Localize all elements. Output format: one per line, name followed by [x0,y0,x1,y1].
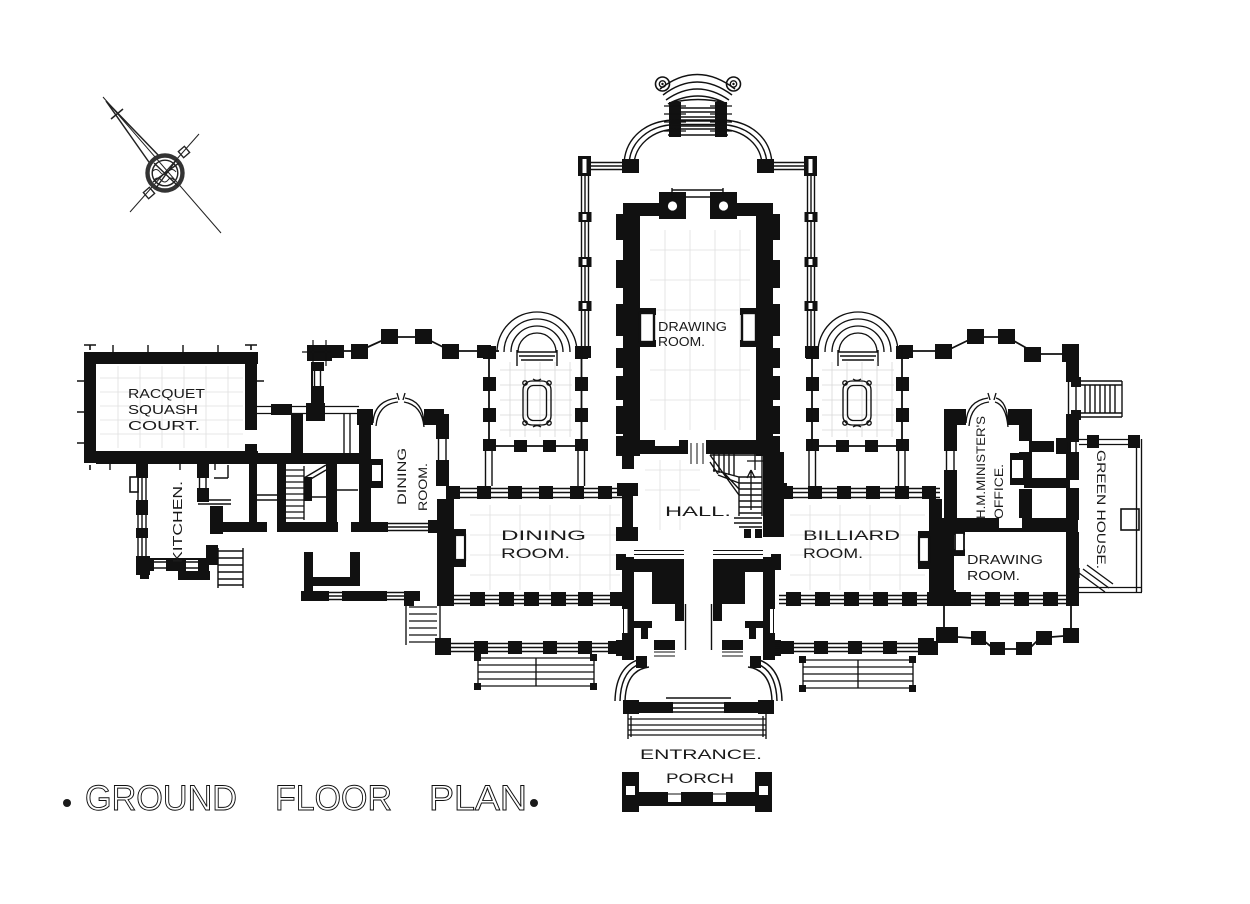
svg-text:PORCH: PORCH [666,770,734,786]
svg-text:SQUASH: SQUASH [128,403,198,417]
svg-text:ROOM.: ROOM. [803,545,863,561]
svg-text:ENTRANCE.: ENTRANCE. [640,746,762,762]
svg-text:DRAWING: DRAWING [658,319,727,334]
svg-text:ROOM.: ROOM. [967,568,1020,583]
svg-text:GREEN HOUSE.: GREEN HOUSE. [1094,450,1108,569]
svg-text:DINING: DINING [395,448,409,505]
svg-text:HALL.: HALL. [665,503,731,519]
svg-text:DINING: DINING [501,527,586,543]
svg-text:PLAN: PLAN [429,779,527,818]
svg-text:BILLIARD: BILLIARD [803,527,900,543]
svg-text:FLOOR: FLOOR [275,779,392,818]
svg-text:ROOM.: ROOM. [658,334,705,349]
svg-text:ROOM.: ROOM. [501,545,570,561]
svg-text:KITCHEN.: KITCHEN. [171,481,185,563]
svg-text:GROUND: GROUND [85,779,237,818]
svg-text:OFFICE.: OFFICE. [992,464,1006,519]
svg-text:RACQUET: RACQUET [128,387,205,401]
svg-text:ROOM.: ROOM. [416,463,430,511]
svg-text:H.M.MINISTER'S: H.M.MINISTER'S [974,416,988,519]
svg-text:DRAWING: DRAWING [967,552,1043,567]
svg-text:COURT.: COURT. [128,419,200,433]
